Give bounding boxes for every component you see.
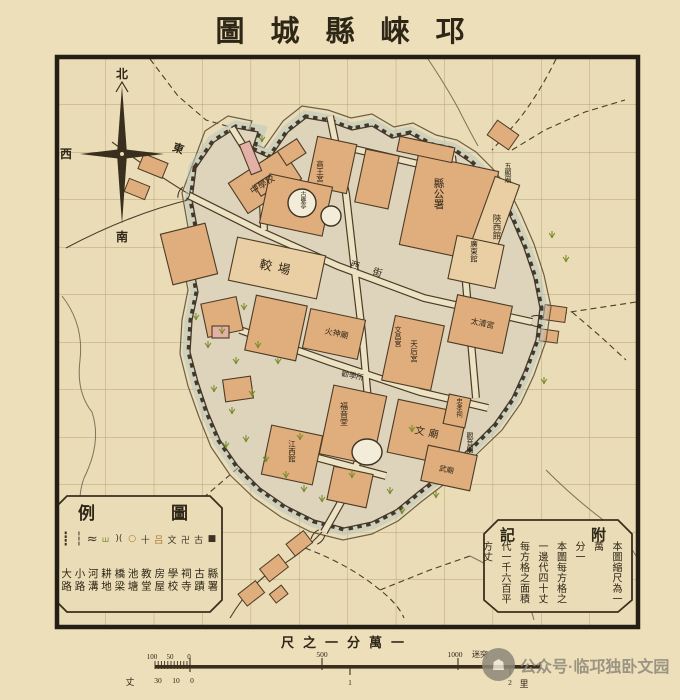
bridge-symbol: )( bbox=[115, 524, 122, 554]
legend-item-label: 房屋 bbox=[152, 568, 165, 593]
legend-item: )( 橋梁 bbox=[112, 524, 125, 593]
map-label: 廣東館 bbox=[469, 239, 478, 264]
legend-item: 十 教堂 bbox=[139, 524, 152, 593]
legend-item: ■ 縣署 bbox=[205, 524, 218, 593]
scale-label: 500 bbox=[316, 650, 328, 659]
scale-title: 尺之一分萬一 bbox=[281, 635, 413, 650]
legend-item-label: 縣署 bbox=[205, 568, 218, 593]
legend-item-label: 大路 bbox=[59, 568, 72, 593]
scale-label: 30 bbox=[154, 676, 162, 685]
compass-north-label: 北 bbox=[116, 66, 128, 81]
legend-item: ┋ 大路 bbox=[59, 524, 72, 593]
legend-item: 文 學校 bbox=[165, 524, 178, 593]
map-label: 高王宮 bbox=[315, 159, 324, 183]
legend-item-label: 祠寺 bbox=[179, 568, 192, 593]
map-label: 文昌宮 bbox=[394, 325, 402, 348]
scale-label: 1000 bbox=[448, 650, 463, 659]
temple-symbol: 卍 bbox=[181, 524, 190, 554]
watermark-text: 公众号·临邛独卧文园 bbox=[520, 653, 669, 677]
historic-city-map-page: 縣公署 陝西館 五顯廟 中學校 高王宮 古甕亭 較場 西街 火神廟 天后宮 文昌… bbox=[0, 0, 680, 700]
scale-label: 10 bbox=[172, 676, 180, 685]
compass-west-label: 西 bbox=[60, 147, 72, 161]
watermark: ☗ 公众号·临邛独卧文园 bbox=[482, 648, 669, 681]
map-label: 五顯廟 bbox=[504, 162, 512, 184]
pond-symbol: ○ bbox=[128, 524, 136, 554]
map-label: 天后宮 bbox=[409, 340, 418, 363]
farmland-symbol: ш bbox=[102, 524, 109, 554]
map-label: 福音堂 bbox=[340, 402, 349, 426]
church-symbol: 十 bbox=[141, 524, 150, 554]
legend-item: 古 古蹟 bbox=[192, 524, 205, 593]
legend-item: ш 耕地 bbox=[99, 524, 112, 593]
legend-item-label: 學校 bbox=[166, 568, 179, 593]
scale-label: 50 bbox=[167, 653, 175, 661]
map-label: 江西館 bbox=[287, 440, 296, 464]
map-title: 圖城縣崍邛 bbox=[0, 8, 680, 50]
county-office-symbol: ■ bbox=[208, 524, 217, 554]
map-label: 觀音閣 bbox=[466, 431, 474, 454]
scale-label: 1 bbox=[348, 678, 352, 687]
legend-item: 卍 祠寺 bbox=[179, 524, 192, 593]
legend-title: 例圖 bbox=[78, 499, 188, 524]
road-minor-symbol: ┆ bbox=[75, 524, 83, 554]
scale-label: 0 bbox=[187, 653, 191, 661]
historic-site-symbol: 古 bbox=[194, 524, 203, 554]
map-label: 縣公署 bbox=[433, 178, 444, 210]
school-symbol: 文 bbox=[168, 524, 177, 554]
legend-item-label: 耕地 bbox=[99, 568, 112, 593]
legend-item-label: 河溝 bbox=[86, 568, 99, 593]
notes-text: 本圖縮尺為一萬 分一 本圖每方格之 一邊代四十丈 每方格之面積 代一千六百平 方… bbox=[492, 541, 624, 607]
legend-item: ┆ 小路 bbox=[72, 524, 85, 593]
legend-items: ┋ 大路 ┆ 小路 ≈ 河溝 ш 耕地 )( 橋梁 ○ 池塘 十 教堂 吕 房屋… bbox=[59, 524, 219, 593]
house-symbol: 吕 bbox=[154, 524, 163, 554]
legend-item: 吕 房屋 bbox=[152, 524, 165, 593]
legend-item: ○ 池塘 bbox=[125, 524, 138, 593]
scale-label: 0 bbox=[190, 676, 194, 685]
legend-item-label: 橋梁 bbox=[112, 568, 125, 593]
compass-south-label: 南 bbox=[116, 229, 128, 244]
legend-item-label: 古蹟 bbox=[192, 568, 205, 593]
legend-item: ≈ 河溝 bbox=[86, 524, 99, 593]
legend-item-label: 小路 bbox=[72, 568, 85, 593]
map-label: 陝西館 bbox=[492, 213, 502, 240]
legend-item-label: 教堂 bbox=[139, 568, 152, 593]
road-major-symbol: ┋ bbox=[62, 524, 70, 554]
legend-item-label: 池塘 bbox=[126, 568, 139, 593]
scale-label: 100 bbox=[147, 653, 158, 661]
river-symbol: ≈ bbox=[87, 524, 98, 554]
map-label: 古甕亭 bbox=[299, 190, 306, 209]
watermark-logo-icon: ☗ bbox=[482, 648, 515, 681]
scale-unit-zhang: 丈 bbox=[125, 677, 134, 687]
